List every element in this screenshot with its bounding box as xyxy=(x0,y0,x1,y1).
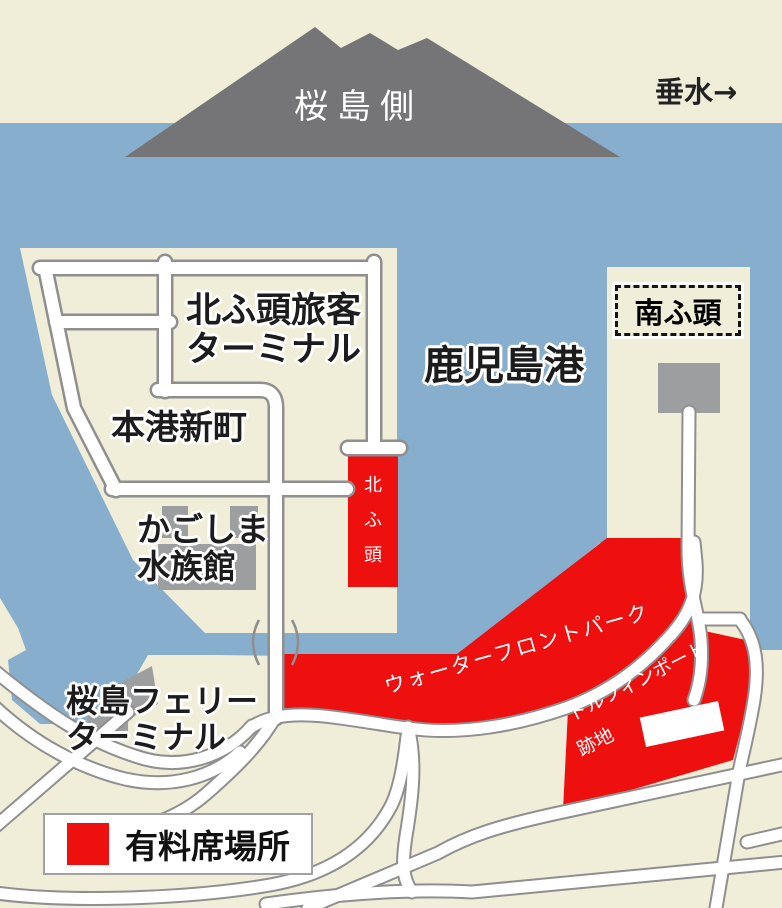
north-pier-char: ふ xyxy=(364,506,382,532)
north-pier-zone-label: 北 ふ 頭 xyxy=(348,455,398,587)
north-pier-char: 北 xyxy=(364,471,382,497)
south-pier-label-box: 南ふ頭 xyxy=(615,285,741,336)
aquarium-line2: 水族館 xyxy=(137,549,269,586)
north-pier-terminal-label: 北ふ頭旅客 ターミナル xyxy=(186,292,361,370)
south-pier-label: 南ふ頭 xyxy=(634,290,721,332)
honko-shinmachi-label: 本港新町 xyxy=(111,409,247,447)
sakurajima-side-label: 桜島側 xyxy=(294,88,423,126)
map-graphics xyxy=(0,0,782,908)
ferry-terminal-label: 桜島フェリー ターミナル xyxy=(66,684,258,756)
legend-label: 有料席場所 xyxy=(125,820,290,868)
tarumizu-direction-label: 垂水→ xyxy=(655,76,737,108)
north-pier-terminal-line2: ターミナル xyxy=(186,331,361,370)
ferry-terminal-line1: 桜島フェリー xyxy=(66,684,258,720)
harbor-map: 桜島側 垂水→ 鹿児島港 北ふ頭旅客 ターミナル 本港新町 かごしま 水族館 北… xyxy=(0,0,782,908)
legend: 有料席場所 xyxy=(43,813,313,875)
aquarium-line1: かごしま xyxy=(137,512,269,549)
aquarium-label: かごしま 水族館 xyxy=(137,512,269,586)
north-pier-terminal-line1: 北ふ頭旅客 xyxy=(186,292,361,331)
kagoshima-port-label: 鹿児島港 xyxy=(424,344,584,389)
ferry-terminal-line2: ターミナル xyxy=(66,720,258,756)
legend-paid-swatch xyxy=(67,823,109,865)
north-pier-char: 頭 xyxy=(364,541,382,567)
